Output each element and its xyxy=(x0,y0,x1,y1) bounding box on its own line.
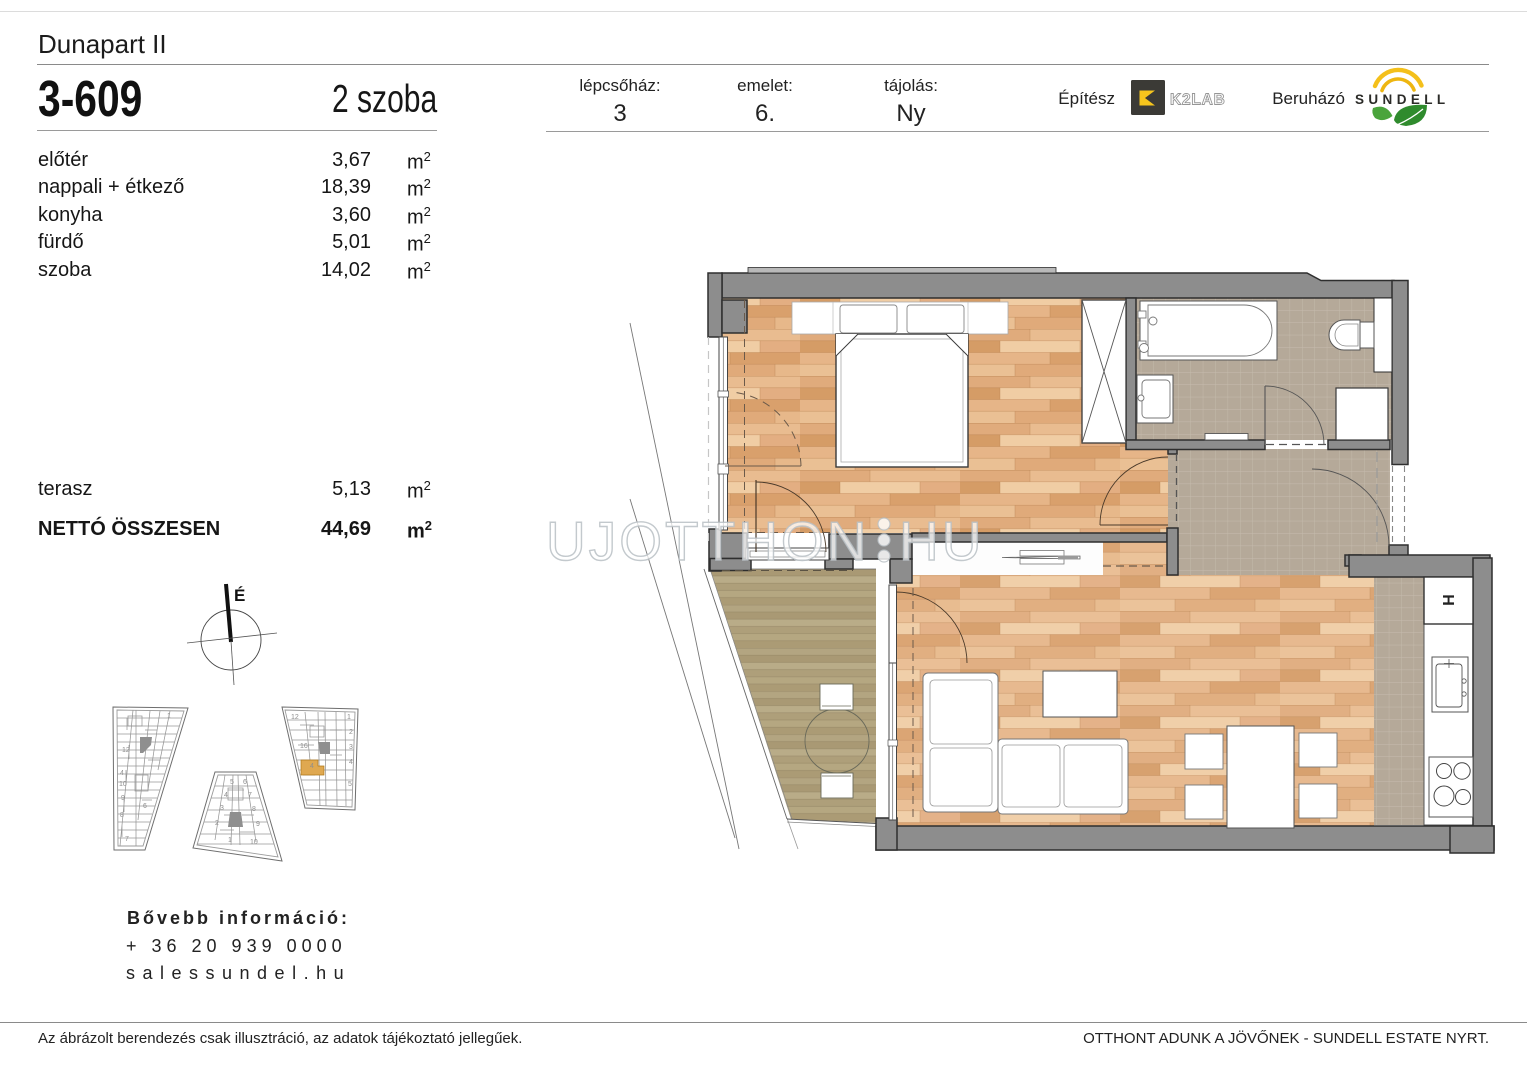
svg-text:1: 1 xyxy=(347,714,351,721)
svg-text:6: 6 xyxy=(243,779,247,786)
svg-text:HU: HU xyxy=(899,510,984,572)
svg-text:5: 5 xyxy=(348,781,352,788)
svg-text:10: 10 xyxy=(250,839,258,846)
svg-text:12: 12 xyxy=(122,747,130,754)
svg-text:UJOTTHON: UJOTTHON xyxy=(546,510,869,572)
svg-text:8: 8 xyxy=(252,806,256,813)
svg-text:12: 12 xyxy=(291,714,299,721)
svg-text:3: 3 xyxy=(349,744,353,751)
svg-text:É: É xyxy=(234,586,245,605)
svg-text:9: 9 xyxy=(256,821,260,828)
svg-text:4: 4 xyxy=(349,759,353,766)
svg-text:6: 6 xyxy=(143,803,147,810)
svg-text:4: 4 xyxy=(224,792,228,799)
svg-text:H: H xyxy=(1439,594,1456,606)
svg-text:3: 3 xyxy=(220,805,224,812)
svg-text:4: 4 xyxy=(310,763,314,770)
svg-text:1: 1 xyxy=(228,837,232,844)
svg-text:9: 9 xyxy=(121,795,125,802)
svg-text:SUNDELL: SUNDELL xyxy=(1355,92,1450,107)
svg-text:4: 4 xyxy=(120,770,124,777)
svg-text:5: 5 xyxy=(230,779,234,786)
svg-text:7: 7 xyxy=(248,792,252,799)
svg-text:7: 7 xyxy=(125,836,129,843)
svg-text:1: 1 xyxy=(167,713,171,720)
svg-text:2: 2 xyxy=(349,729,353,736)
svg-text:10: 10 xyxy=(119,781,127,788)
svg-text:16: 16 xyxy=(300,743,308,750)
svg-text:K2LAB: K2LAB xyxy=(1170,92,1226,109)
svg-text:2: 2 xyxy=(215,820,219,827)
svg-text:8: 8 xyxy=(120,812,124,819)
